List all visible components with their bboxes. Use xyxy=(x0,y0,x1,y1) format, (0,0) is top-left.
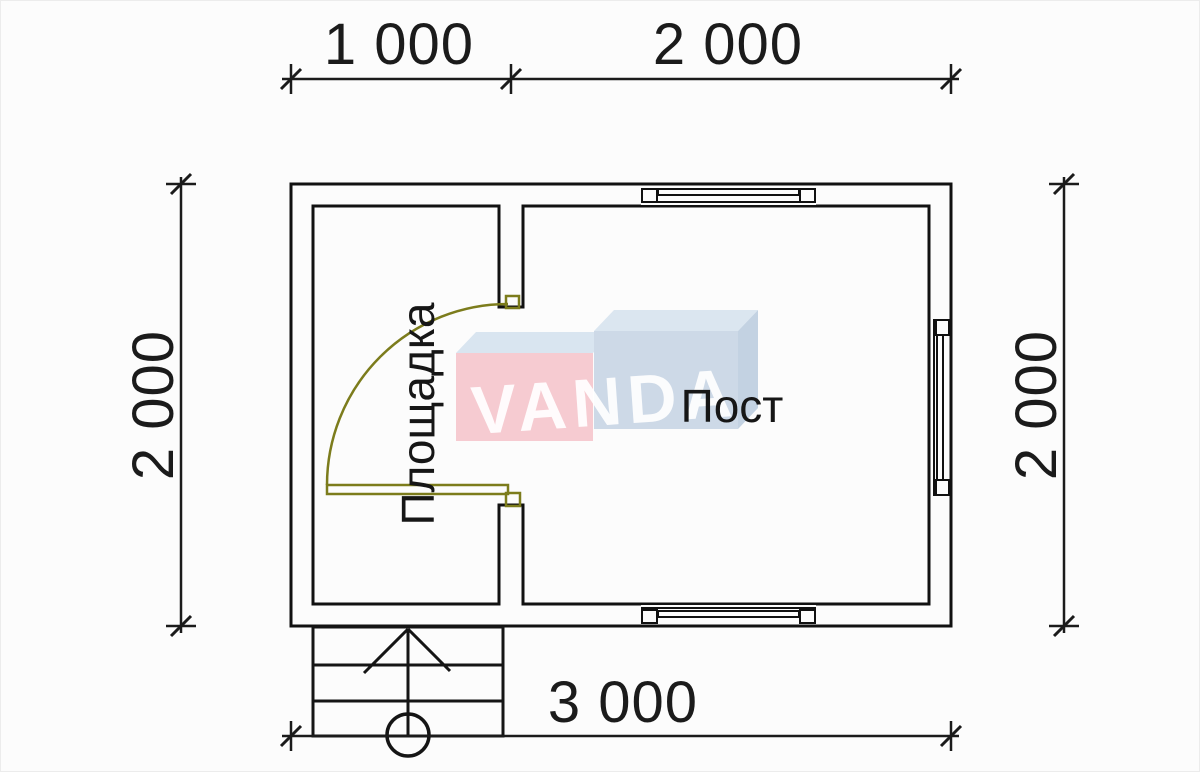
room-label-left: Площадка xyxy=(392,302,444,525)
floor-plan-canvas: VANDA Площадка Пост xyxy=(0,0,1200,772)
watermark-pink-box-top-face xyxy=(456,332,613,353)
dimension-left-label: 2 000 xyxy=(121,330,186,480)
room-label-right: Пост xyxy=(681,380,784,432)
window-right xyxy=(931,319,949,496)
floor-plan-drawing: VANDA Площадка Пост xyxy=(1,1,1200,772)
dimension-bottom-label: 3 000 xyxy=(548,670,698,735)
dimension-right: 2 000 xyxy=(1004,174,1079,636)
dimension-top-label-1: 1 000 xyxy=(324,12,474,77)
dimension-top: 1 000 2 000 xyxy=(281,12,961,94)
window-top xyxy=(641,187,816,205)
dimension-left: 2 000 xyxy=(121,174,196,636)
dimension-bottom: 3 000 xyxy=(281,670,961,751)
window-bottom xyxy=(641,605,816,623)
watermark-blue-box-top-face xyxy=(594,310,758,331)
dimension-right-label: 2 000 xyxy=(1004,330,1069,480)
dimension-top-label-2: 2 000 xyxy=(653,12,803,77)
